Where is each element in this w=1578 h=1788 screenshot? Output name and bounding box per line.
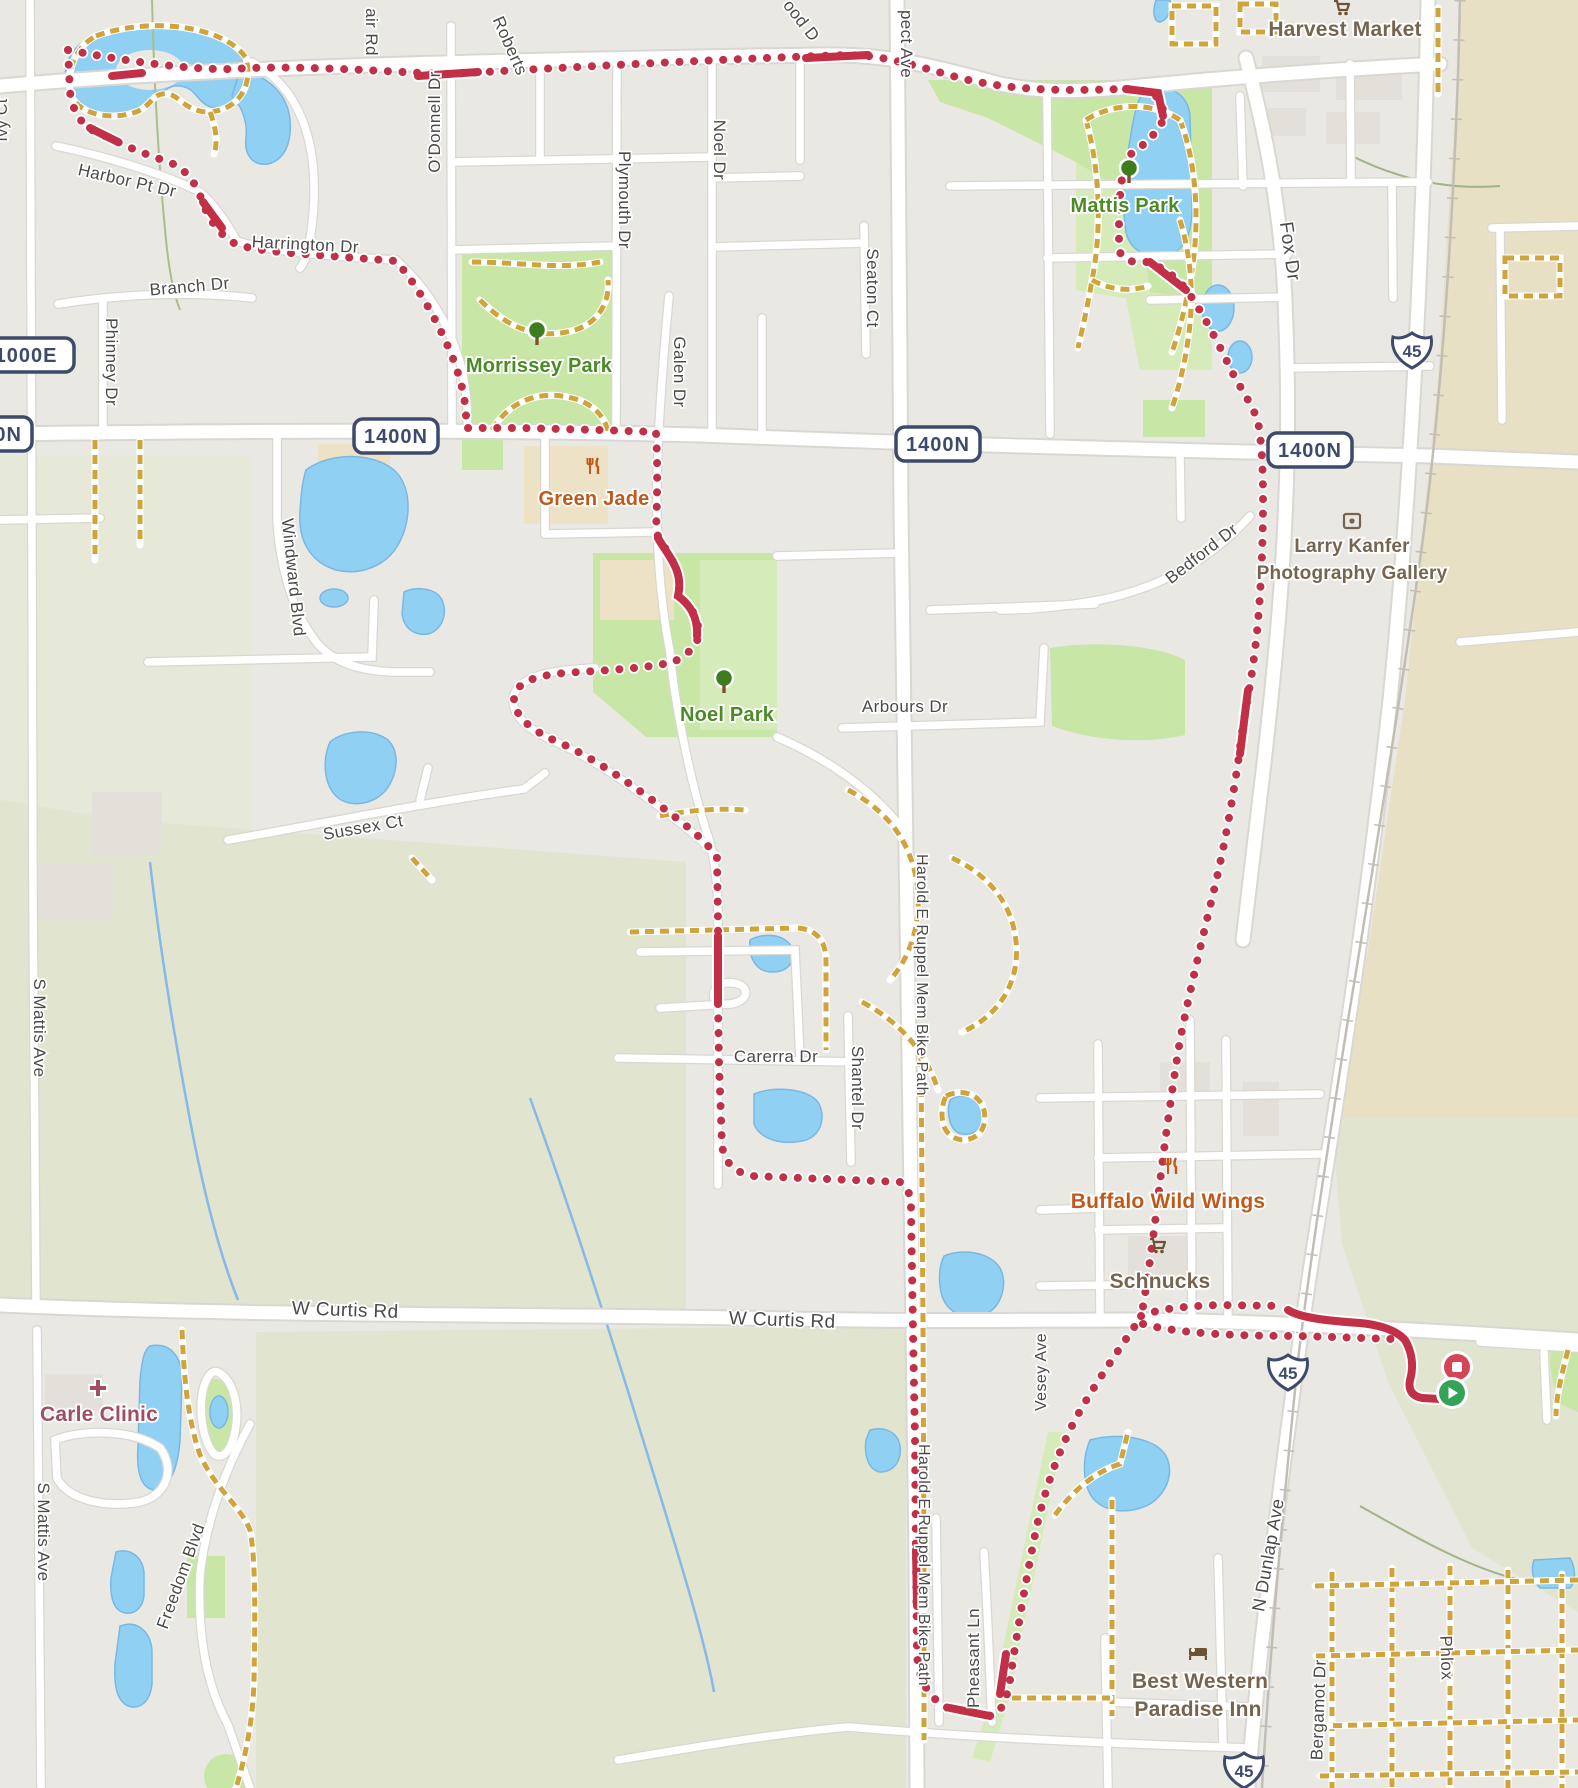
svg-text:1400N: 1400N [906, 434, 970, 456]
svg-text:1400N: 1400N [0, 424, 22, 446]
road-minor [712, 243, 864, 247]
road-minor [1350, 64, 1351, 182]
poi-label: Noel Park [680, 704, 775, 726]
road-minor [950, 182, 1428, 186]
poi-label: Schnucks [1110, 1270, 1211, 1293]
road-minor [1226, 1040, 1228, 1322]
road-minor [1180, 456, 1181, 518]
road-ref-badge: 1400N [896, 427, 980, 461]
svg-text:45: 45 [1279, 1364, 1298, 1383]
road-minor [1544, 1352, 1547, 1420]
poi-label: Larry Kanfer [1294, 536, 1410, 557]
street-label: Arbours Dr [862, 697, 948, 716]
road-ref-badge: 1400N [1268, 433, 1352, 467]
svg-text:1000E: 1000E [0, 345, 57, 367]
road-minor [1098, 1044, 1100, 1320]
street-label: Bergamot Dr [1307, 1659, 1330, 1760]
street-label: air Rd [362, 8, 381, 56]
green-jade-building [524, 446, 608, 524]
road-minor [0, 518, 100, 520]
poi-label: Best Western [1132, 1670, 1268, 1693]
road-minor [1492, 226, 1578, 228]
road-ref-badge: 1000E [0, 338, 74, 372]
street-label: S Mattis Ave [30, 979, 49, 1078]
road-minor [1150, 297, 1287, 300]
street-label: Harold E Ruppel Mem Bike Path [915, 1444, 932, 1686]
street-label: W Curtis Rd [291, 1298, 398, 1323]
street-label: O'Donnell Dr [425, 71, 444, 173]
street-label: Plymouth Dr [615, 151, 634, 249]
svg-text:1400N: 1400N [1278, 440, 1342, 462]
street-label: Harold E Ruppel Mem Bike Path [913, 854, 930, 1096]
poi-label: Green Jade [539, 488, 650, 510]
road-minor [777, 553, 900, 556]
svg-text:45: 45 [1403, 342, 1422, 361]
street-label: Ivy Ct [0, 98, 11, 141]
poi-label: Buffalo Wild Wings [1071, 1190, 1266, 1213]
street-label: Shantel Dr [848, 1046, 867, 1130]
road-minor [452, 246, 616, 250]
road-minor [1040, 1094, 1320, 1098]
road-ref-badge: 1400N [354, 419, 438, 453]
map-view[interactable]: air RdRobertsood Dpect AveO'Donnell DrIv… [0, 0, 1578, 1788]
road-minor [1098, 1154, 1322, 1158]
route-solid-segment [112, 73, 142, 76]
road-ref-badge: 1400N [0, 417, 32, 451]
road-minor [1105, 1638, 1108, 1788]
svg-text:45: 45 [1235, 1762, 1254, 1781]
poi-label: Harvest Market [1268, 18, 1421, 41]
road-minor [1240, 96, 1243, 186]
start-marker[interactable] [1436, 1377, 1468, 1409]
street-label: Phlox [1436, 1635, 1457, 1680]
road-minor [1047, 92, 1050, 434]
road-minor [936, 1518, 939, 1722]
street-label: Phinney Dr [102, 318, 121, 406]
road-minor [546, 532, 658, 534]
street-label: W Curtis Rd [728, 1308, 835, 1333]
street-label: pect Ave [897, 10, 916, 78]
street-label: Pheasant Ln [964, 1608, 983, 1708]
poi-label: Paradise Inn [1134, 1698, 1261, 1721]
arbours-green [1050, 644, 1185, 740]
poi-label: Morrissey Park [466, 355, 613, 377]
street-label: Vesey Ave [1033, 1333, 1050, 1411]
street-label: S Mattis Ave [34, 1483, 53, 1582]
road-minor [1098, 1228, 1226, 1230]
road-minor [451, 26, 452, 432]
street-label: Carerra Dr [734, 1047, 818, 1066]
road-minor [452, 157, 712, 162]
route-solid-segment [806, 55, 868, 58]
svg-text:1400N: 1400N [364, 426, 428, 448]
street-label: Galen Dr [670, 336, 689, 407]
road-minor [1047, 254, 1288, 258]
poi-label: Carle Clinic [40, 1403, 158, 1426]
road-minor [1392, 186, 1393, 298]
street-label: Seaton Ct [863, 248, 882, 327]
poi-label: Photography Gallery [1257, 563, 1448, 584]
street-label: Noel Dr [710, 120, 729, 180]
landcover-layer [0, 0, 1578, 1788]
poi-label: Mattis Park [1071, 195, 1181, 217]
